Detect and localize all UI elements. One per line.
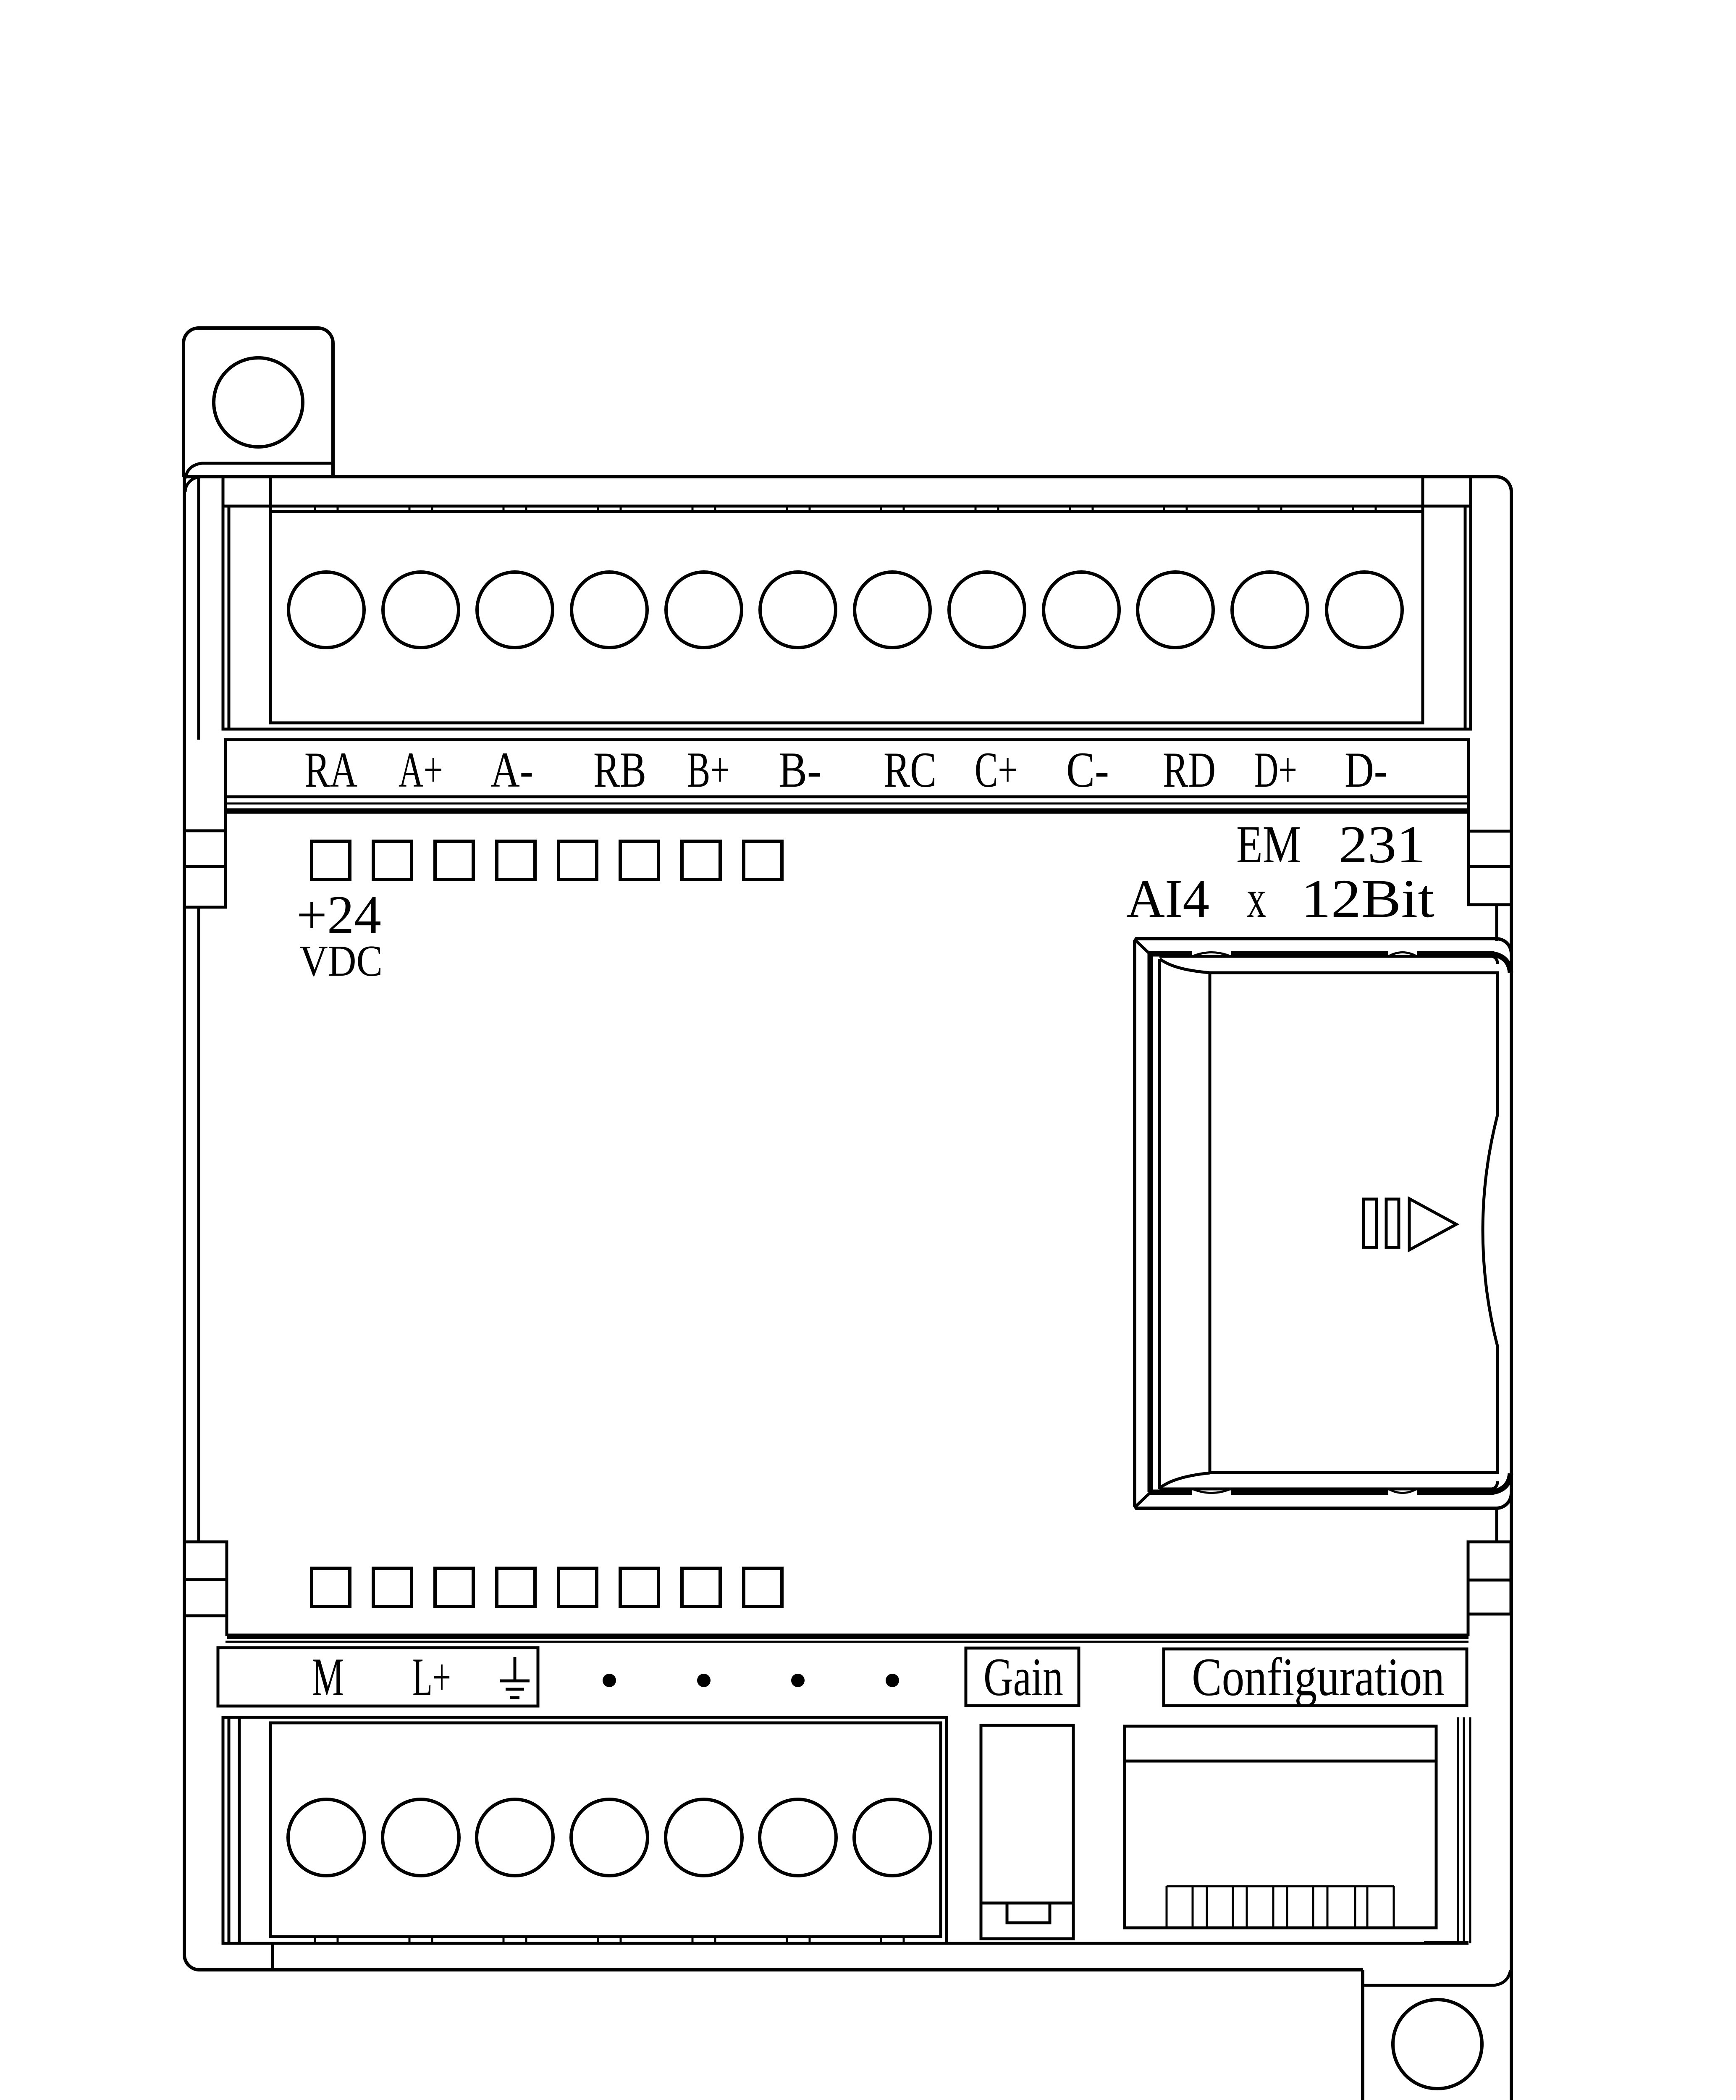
svg-text:RB: RB <box>593 742 646 798</box>
svg-text:RA: RA <box>304 742 357 798</box>
svg-text:RD: RD <box>1163 742 1216 798</box>
svg-text:C+: C+ <box>975 742 1017 798</box>
svg-text:L+: L+ <box>412 1647 451 1707</box>
svg-text:RC: RC <box>884 742 936 798</box>
svg-text:12Bit: 12Bit <box>1301 869 1434 929</box>
svg-text:A+: A+ <box>399 742 443 798</box>
svg-text:231: 231 <box>1339 815 1425 874</box>
svg-text:B-: B- <box>779 742 821 798</box>
svg-text:A-: A- <box>490 742 533 798</box>
svg-text:C-: C- <box>1066 742 1109 798</box>
svg-text:M: M <box>312 1647 344 1707</box>
svg-text:D-: D- <box>1345 742 1387 798</box>
svg-text:VDC: VDC <box>299 936 383 985</box>
svg-text:Configuration: Configuration <box>1192 1647 1445 1707</box>
svg-text:EM: EM <box>1236 815 1301 874</box>
svg-text:D+: D+ <box>1254 742 1297 798</box>
svg-text:Gain: Gain <box>983 1647 1063 1707</box>
svg-text:B+: B+ <box>687 742 730 798</box>
svg-text:AI4: AI4 <box>1126 869 1209 929</box>
svg-text:x: x <box>1247 869 1266 929</box>
